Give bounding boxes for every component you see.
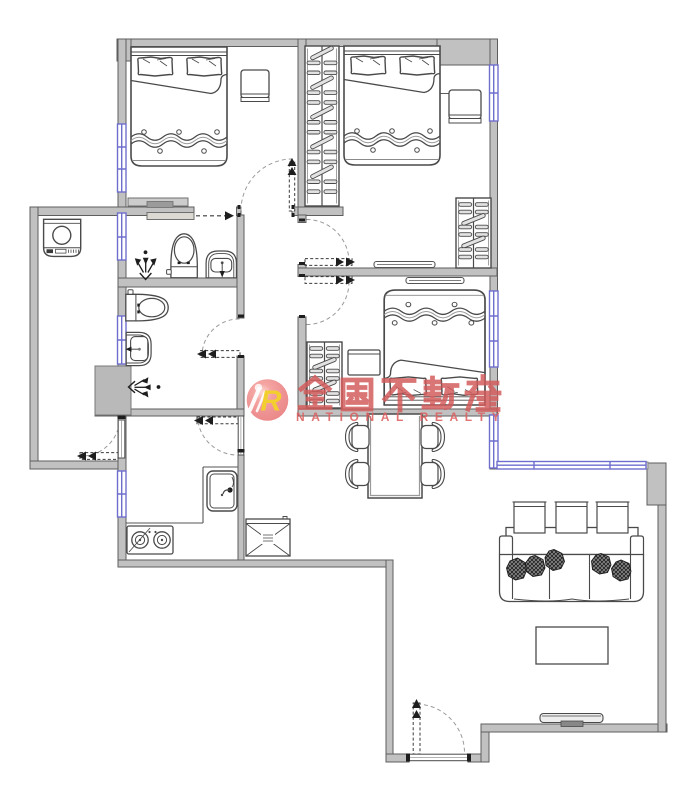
- svg-text:R: R: [261, 386, 282, 418]
- svg-text:NATIONAL REALTY: NATIONAL REALTY: [296, 410, 506, 424]
